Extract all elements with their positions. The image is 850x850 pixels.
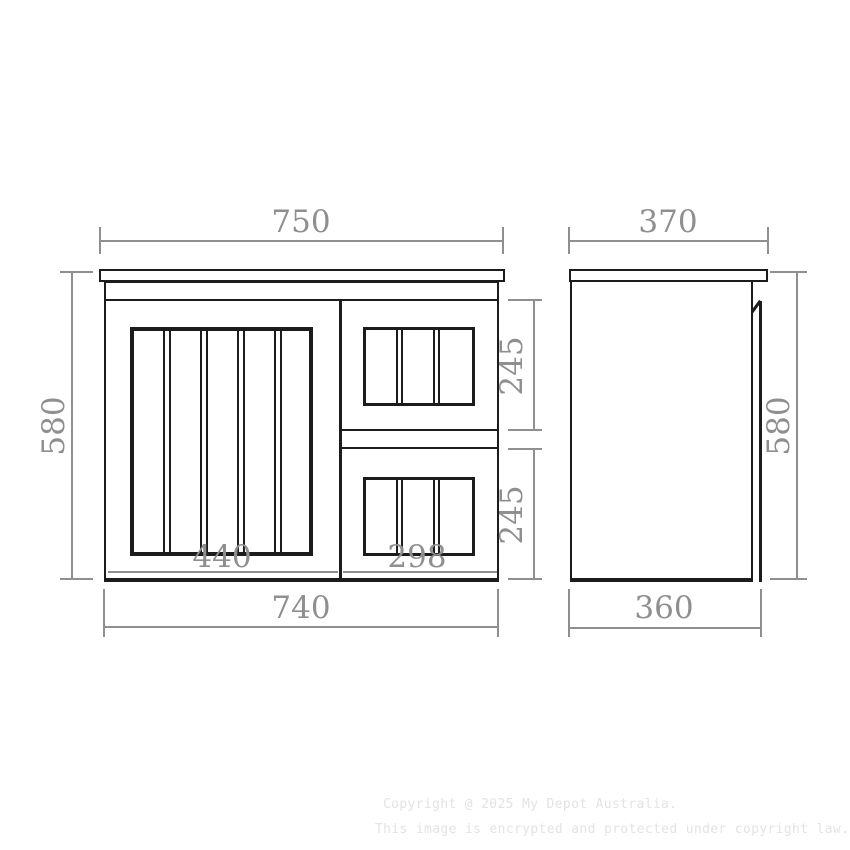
dim-label-side-bottom-depth: 360 (614, 591, 714, 625)
side-body-front-line (751, 281, 753, 580)
dim-label-drawer-width: 298 (367, 540, 467, 574)
extension-tick (508, 299, 542, 301)
dim-label-side-height: 580 (762, 376, 796, 476)
front-top-rail-line (106, 299, 497, 301)
top-drawer-slat-line (438, 330, 440, 403)
top-drawer-slat-line (433, 330, 435, 403)
top-drawer-slat-line (396, 330, 398, 403)
door-slat-line (206, 331, 208, 552)
side-bottom-line (570, 578, 753, 582)
door-slat-line (280, 331, 282, 552)
dim-label-door-width: 440 (172, 540, 272, 574)
extension-tick (770, 271, 807, 273)
door-slat-line (200, 331, 202, 552)
watermark-line-1: Copyright @ 2025 My Depot Australia. (383, 797, 677, 812)
door-slat-line (169, 331, 171, 552)
extension-tick (60, 271, 93, 273)
extension-tick (508, 448, 542, 450)
vanity-dimension-diagram: 750 580 440 298 740 245 245 370 580 (0, 0, 850, 850)
extension-line (760, 589, 762, 637)
door-slat-line (274, 331, 276, 552)
dim-label-front-height: 580 (37, 376, 71, 476)
dimension-line (533, 300, 535, 430)
dimension-line (568, 627, 761, 629)
extension-tick (508, 578, 542, 580)
dimension-line (99, 240, 503, 242)
dim-label-bottom-drawer-height: 245 (495, 465, 529, 565)
side-countertop (569, 269, 768, 282)
dim-label-side-top-depth: 370 (618, 205, 718, 239)
dim-label-top-drawer-height: 245 (495, 316, 529, 416)
side-back-line (570, 281, 572, 580)
dimension-line (103, 626, 498, 628)
watermark-line-2: This image is encrypted and protected un… (375, 822, 849, 837)
extension-tick (60, 578, 93, 580)
extension-line (497, 589, 499, 637)
extension-line (103, 589, 105, 637)
dimension-line (568, 240, 768, 242)
door-slat-line (237, 331, 239, 552)
dim-label-front-bottom-width: 740 (251, 591, 351, 625)
front-section-divider (339, 301, 342, 580)
drawer-gap-line (342, 447, 497, 449)
drawer-gap-line (342, 429, 497, 431)
door-slat-line (163, 331, 165, 552)
door-slat-line (243, 331, 245, 552)
door-panel (130, 327, 313, 556)
top-drawer-panel (363, 327, 475, 406)
dim-label-front-top-width: 750 (251, 205, 351, 239)
extension-tick (770, 578, 807, 580)
extension-line (568, 589, 570, 637)
dimension-line (533, 449, 535, 579)
extension-tick (508, 429, 542, 431)
top-drawer-slat-line (401, 330, 403, 403)
